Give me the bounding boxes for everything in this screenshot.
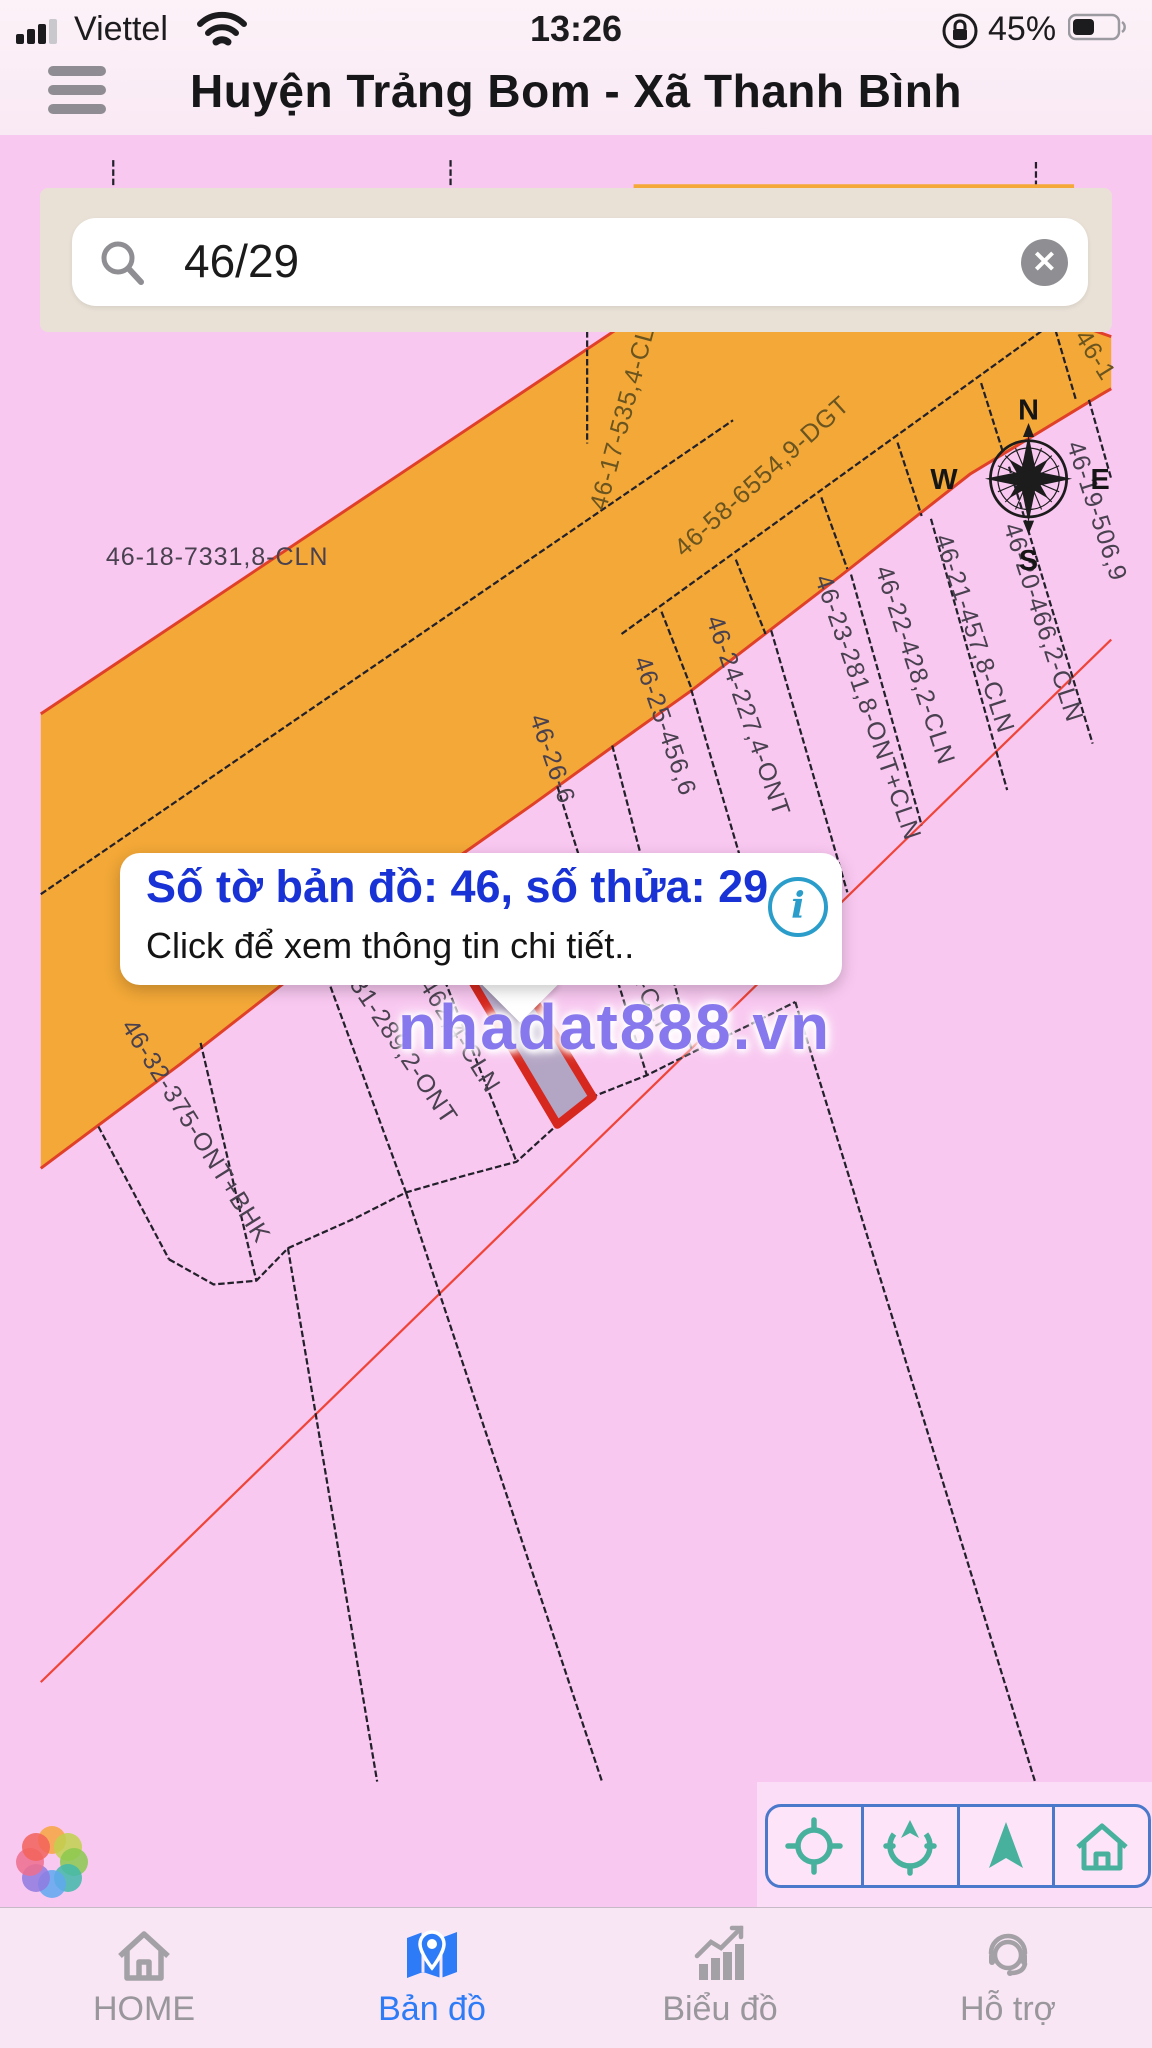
parcel-info-popup[interactable]: Số tờ bản đồ: 46, số thửa: 29 Click để x… — [120, 853, 842, 985]
tab-map[interactable]: Bản đồ — [288, 1908, 576, 2048]
tab-home[interactable]: HOME — [0, 1908, 288, 2048]
map-controls — [765, 1804, 1151, 1888]
tab-home-label: HOME — [93, 1990, 195, 2029]
home-tab-icon — [112, 1922, 176, 1986]
compass-east-label: E — [1090, 464, 1109, 496]
navigation-arrow-icon — [976, 1816, 1036, 1876]
popup-subtitle: Click để xem thông tin chi tiết.. — [146, 925, 634, 967]
compass-west-label: W — [930, 464, 958, 496]
map-home-button[interactable] — [1052, 1807, 1148, 1885]
tab-map-label: Bản đồ — [378, 1990, 486, 2029]
bottom-tab-bar: HOME Bản đồ — [0, 1907, 1152, 2048]
page-title: Huyện Trảng Bom - Xã Thanh Bình — [0, 64, 1152, 118]
locate-button[interactable] — [768, 1807, 861, 1885]
map-controls-panel — [757, 1782, 1152, 1907]
tab-support[interactable]: Hỗ trợ — [864, 1908, 1152, 2048]
support-headset-icon — [976, 1922, 1040, 1986]
chart-tab-icon — [688, 1922, 752, 1986]
app-screen: 46-18-7331,8-CLN 46-17-535,4-CL 46-58-65… — [0, 0, 1152, 2048]
navigate-button[interactable] — [957, 1807, 1053, 1885]
battery-icon — [1068, 13, 1132, 45]
clear-search-button[interactable]: ✕ — [1021, 239, 1068, 286]
search-icon — [98, 238, 148, 288]
search-bar-container: 46/29 ✕ — [40, 188, 1112, 332]
tab-charts-label: Biểu đồ — [662, 1990, 777, 2029]
compass-reset-button[interactable] — [861, 1807, 957, 1885]
compass-south-label: S — [1019, 545, 1038, 577]
battery-percent-label: 45% — [988, 10, 1056, 49]
search-input[interactable]: 46/29 ✕ — [72, 218, 1088, 306]
crosshair-icon — [784, 1816, 844, 1876]
photos-flower-icon[interactable] — [16, 1826, 88, 1898]
popup-title: Số tờ bản đồ: 46, số thửa: 29 — [146, 861, 768, 913]
search-value: 46/29 — [184, 234, 299, 288]
tab-support-label: Hỗ trợ — [960, 1990, 1056, 2029]
map-tab-icon — [400, 1922, 464, 1986]
compass-icon — [880, 1816, 940, 1876]
home-icon — [1072, 1816, 1132, 1876]
tab-charts[interactable]: Biểu đồ — [576, 1908, 864, 2048]
top-chrome: Viettel 13:26 45% — [0, 0, 1152, 135]
info-icon[interactable]: i — [768, 877, 828, 937]
status-bar: Viettel 13:26 45% — [0, 0, 1152, 60]
parcel-label: 46-18-7331,8-CLN — [106, 543, 329, 571]
watermark: nhadat888.vn — [398, 990, 831, 1064]
compass-north-label: N — [1018, 394, 1039, 426]
orientation-lock-icon — [940, 11, 980, 51]
